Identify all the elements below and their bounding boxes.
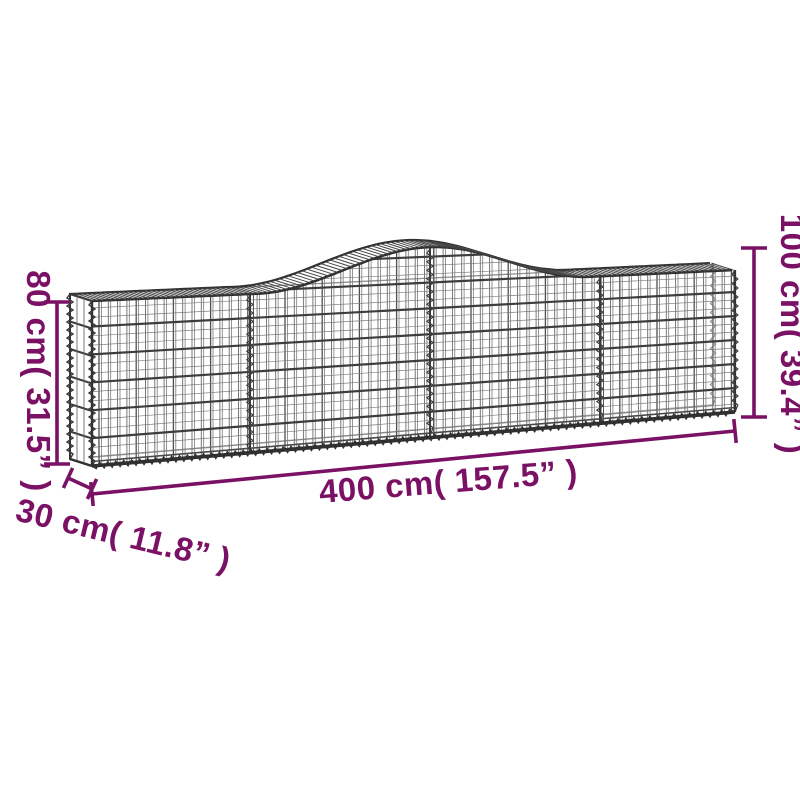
top-band-hatch [330, 260, 352, 267]
top-band-hatch [334, 258, 356, 265]
top-band-hatch [302, 271, 324, 278]
dimension-label-length: 400 cm( 157.5” ) [318, 452, 579, 510]
dim-cap [734, 419, 736, 443]
dimension-label-height-left: 80 cm( 31.5” ) [20, 270, 57, 492]
top-band-hatch [348, 253, 370, 260]
top-band-hatch [311, 267, 333, 274]
gabion-dimension-diagram: 80 cm( 31.5” ) 100 cm( 39.4” ) 30 cm( 11… [0, 0, 800, 800]
top-band-hatch [320, 264, 342, 271]
dim-cap [91, 482, 93, 506]
basket-top-band [70, 240, 733, 301]
mesh-wire [92, 408, 735, 462]
dimension-label-height-right: 100 cm( 39.4” ) [774, 214, 800, 454]
top-band-hatch [343, 255, 365, 262]
top-band-hatch [297, 273, 319, 280]
dim-depth-line [68, 478, 92, 489]
dimension-label-depth: 30 cm( 11.8” ) [12, 491, 234, 578]
diagram-canvas: 80 cm( 31.5” ) 100 cm( 39.4” ) 30 cm( 11… [0, 0, 800, 800]
top-band-hatch [293, 274, 315, 281]
top-band-hatch [325, 262, 347, 269]
top-band-hatch [307, 269, 329, 276]
top-band-hatch [316, 265, 338, 272]
top-band-hatch [339, 256, 361, 263]
